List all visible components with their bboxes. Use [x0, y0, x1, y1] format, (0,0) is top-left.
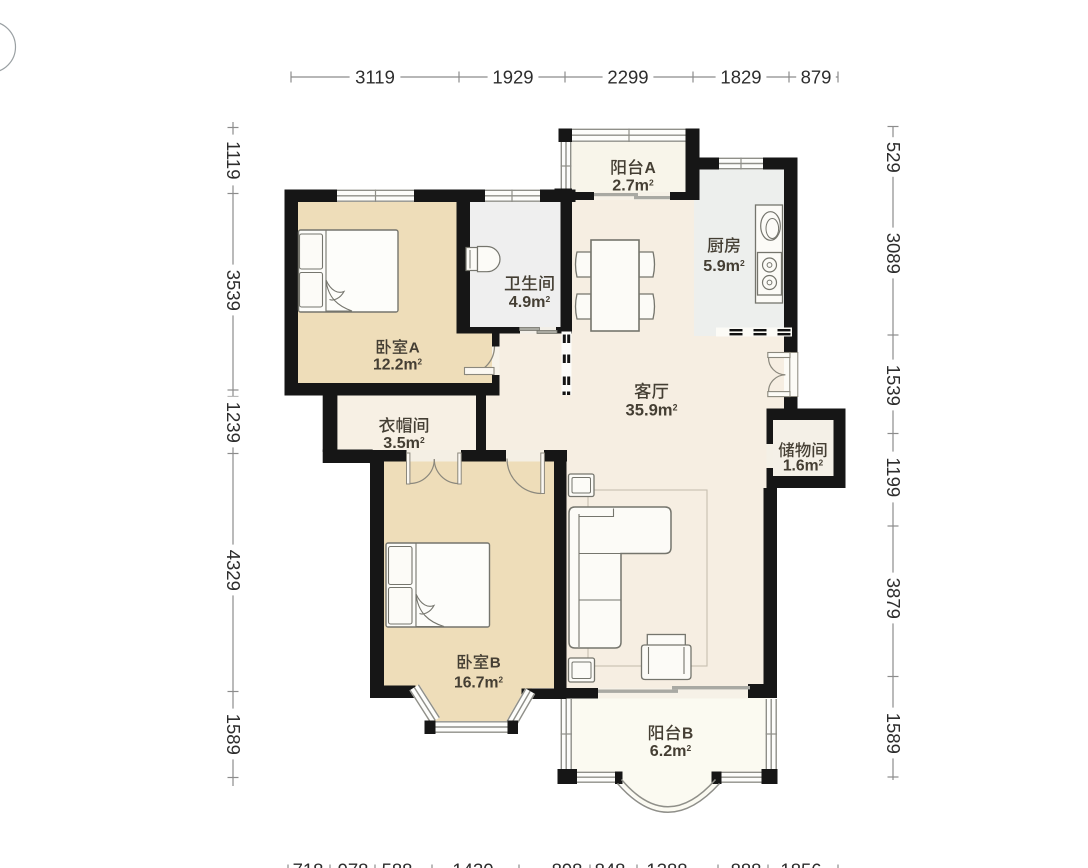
svg-text:12.2m2: 12.2m2 [373, 357, 422, 374]
svg-text:978: 978 [338, 860, 369, 868]
svg-text:529: 529 [883, 142, 904, 173]
svg-text:1.6m2: 1.6m2 [783, 458, 824, 475]
svg-text:1119: 1119 [223, 141, 244, 179]
svg-text:1929: 1929 [492, 67, 533, 88]
svg-text:B: B [490, 655, 501, 672]
svg-text:1829: 1829 [720, 67, 761, 88]
svg-text:848: 848 [595, 860, 626, 868]
svg-text:5.9m2: 5.9m2 [703, 257, 745, 275]
svg-text:2.7m2: 2.7m2 [612, 177, 654, 195]
svg-text:A: A [409, 340, 420, 357]
svg-text:1388: 1388 [646, 860, 687, 868]
svg-text:1589: 1589 [883, 713, 904, 754]
svg-text:3539: 3539 [223, 270, 244, 311]
svg-text:1199: 1199 [883, 457, 904, 497]
svg-text:718: 718 [293, 860, 324, 868]
svg-text:A: A [645, 160, 656, 177]
svg-text:888: 888 [731, 860, 762, 868]
svg-text:1239: 1239 [223, 402, 244, 443]
svg-text:3.5m2: 3.5m2 [383, 434, 425, 452]
svg-text:1589: 1589 [223, 714, 244, 755]
svg-text:35.9m2: 35.9m2 [626, 401, 678, 420]
svg-text:898: 898 [552, 860, 583, 868]
svg-text:16.7m2: 16.7m2 [454, 675, 503, 692]
svg-text:B: B [682, 726, 693, 743]
svg-text:3879: 3879 [883, 578, 904, 619]
svg-text:2299: 2299 [607, 67, 648, 88]
svg-text:3119: 3119 [355, 67, 395, 88]
svg-text:4.9m2: 4.9m2 [509, 293, 551, 311]
svg-text:588: 588 [382, 860, 413, 868]
svg-text:3089: 3089 [883, 233, 904, 274]
svg-text:1430: 1430 [452, 860, 493, 868]
svg-text:1539: 1539 [883, 365, 904, 406]
svg-text:879: 879 [801, 67, 832, 88]
svg-text:1856: 1856 [780, 860, 821, 868]
svg-text:6.2m2: 6.2m2 [650, 742, 692, 760]
svg-text:4329: 4329 [223, 550, 244, 591]
